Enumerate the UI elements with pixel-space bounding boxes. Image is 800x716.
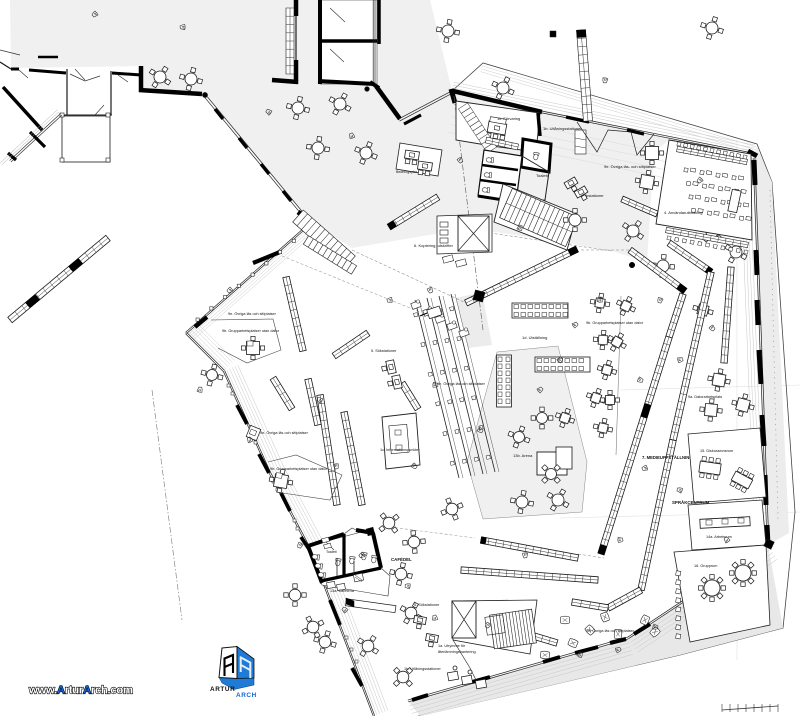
svg-text:5. Sökstationer: 5. Sökstationer (371, 349, 397, 353)
svg-text:1a. Utrymme för: 1a. Utrymme för (438, 644, 466, 648)
svg-text:9b. Grupparbetsplatser utan da: 9b. Grupparbetsplatser utan dator (222, 329, 280, 333)
svg-text:13b. Arena: 13b. Arena (513, 453, 533, 458)
svg-text:9b. Grupparbetsplatser utan da: 9b. Grupparbetsplatser utan dator (586, 321, 644, 325)
svg-text:1c. Informationspunkter: 1c. Informationspunkter (380, 448, 420, 452)
svg-text:9e. Övriga läs och sittplatser: 9e. Övriga läs och sittplatser (260, 431, 309, 435)
svg-text:6. Kopiering, utskrifter: 6. Kopiering, utskrifter (414, 243, 454, 248)
svg-text:4. Användarutbildning: 4. Användarutbildning (664, 210, 702, 215)
svg-text:9e. Övriga läs- och sittplatse: 9e. Övriga läs- och sittplatser (604, 164, 656, 169)
svg-text:återlämningshantering: återlämningshantering (438, 650, 476, 654)
svg-text:1d. Utställning: 1d. Utställning (522, 335, 547, 340)
svg-text:9b. Grupparbetsplatser utan da: 9b. Grupparbetsplatser utan dator (270, 467, 328, 471)
svg-text:ARCH: ARCH (236, 692, 257, 699)
svg-text:16. Grupprum: 16. Grupprum (694, 564, 717, 568)
svg-text:Toalett: Toalett (326, 550, 337, 554)
svg-text:9a. Datorarbetsplats: 9a. Datorarbetsplats (688, 395, 722, 399)
svg-text:Toalett: Toalett (536, 173, 549, 178)
svg-text:14a. Arbetsrum: 14a. Arbetsrum (706, 535, 732, 539)
svg-text:9e. Övriga läs och sittplatser: 9e. Övriga läs och sittplatser (437, 382, 486, 386)
svg-text:7. MEDIEUPPSTÄLLNING: 7. MEDIEUPPSTÄLLNING (642, 455, 693, 460)
svg-text:ARTUR: ARTUR (210, 686, 235, 693)
svg-text:13a. Cafeteria: 13a. Cafeteria (330, 589, 355, 593)
svg-text:www.ArturArch.com: www.ArturArch.com (28, 685, 133, 697)
svg-text:9e. Övriga läs och sittplatser: 9e. Övriga läs och sittplatser (586, 629, 635, 633)
svg-text:11. Förvaring: 11. Förvaring (497, 116, 520, 121)
svg-text:9e. Övriga läs och sittplatser: 9e. Övriga läs och sittplatser (228, 312, 277, 316)
svg-text:1b. Utlåningsstationer: 1b. Utlåningsstationer (404, 667, 441, 671)
svg-text:CAFÉDEL: CAFÉDEL (391, 557, 412, 562)
svg-text:15. Diskussionsrum: 15. Diskussionsrum (700, 449, 733, 453)
svg-text:Bedningsytor: Bedningsytor (396, 170, 418, 174)
svg-text:5. Sökstationer: 5. Sökstationer (414, 603, 440, 607)
